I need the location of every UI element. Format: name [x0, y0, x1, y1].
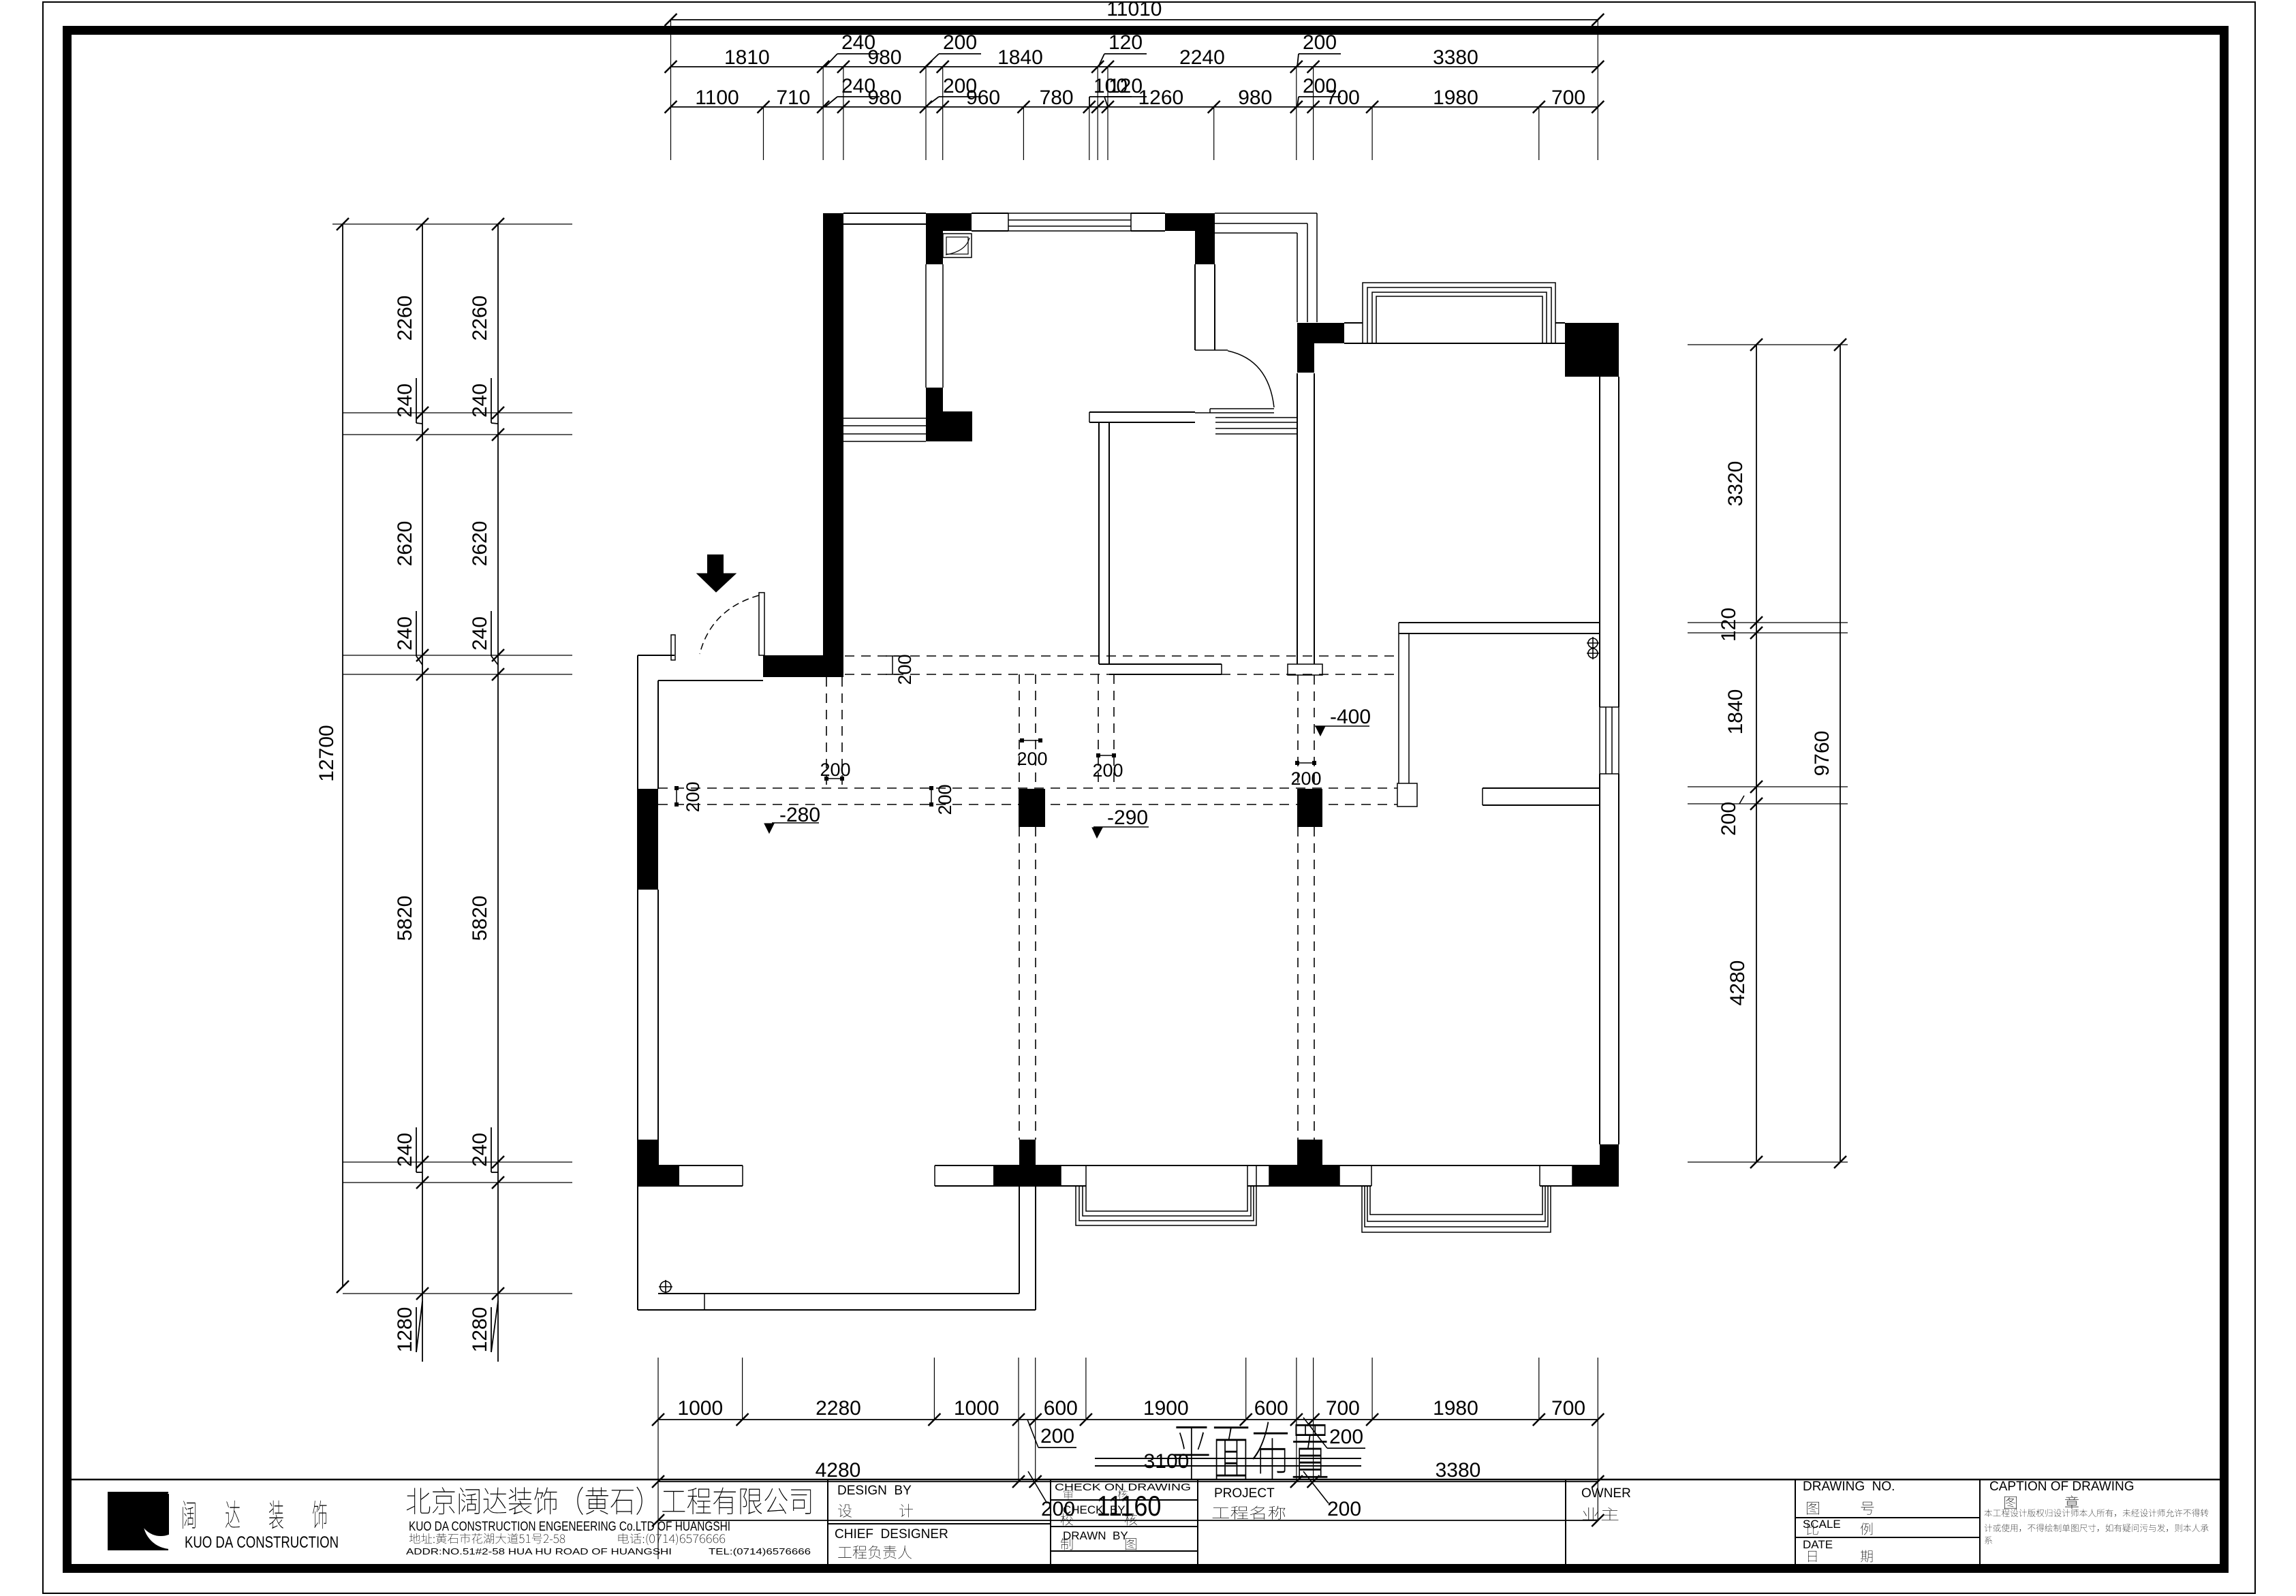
svg-text:700: 700 — [1551, 1397, 1585, 1420]
svg-text:3320: 3320 — [1724, 461, 1747, 507]
svg-text:240: 240 — [469, 384, 491, 418]
svg-text:DATE: DATE — [1803, 1538, 1833, 1551]
svg-text:ADDR:NO.51#2-58 HUA HU ROAD OF: ADDR:NO.51#2-58 HUA HU ROAD OF HUANGSHI — [406, 1546, 672, 1556]
svg-text:120: 120 — [1718, 608, 1740, 642]
svg-text:PROJECT: PROJECT — [1214, 1486, 1275, 1501]
svg-text:200: 200 — [1040, 1425, 1074, 1448]
svg-text:1840: 1840 — [997, 46, 1043, 69]
svg-text:710: 710 — [776, 87, 810, 109]
svg-text:3100: 3100 — [1144, 1450, 1190, 1473]
svg-text:1280: 1280 — [394, 1307, 416, 1353]
svg-text:120: 120 — [1108, 31, 1143, 54]
svg-text:12700: 12700 — [315, 725, 338, 781]
svg-text:KUO DA CONSTRUCTION ENGENEERIN: KUO DA CONSTRUCTION ENGENEERING Co.LTD O… — [409, 1520, 730, 1534]
svg-text:3380: 3380 — [1436, 1459, 1481, 1482]
svg-text:11010: 11010 — [1106, 0, 1162, 20]
svg-text:120: 120 — [1108, 75, 1143, 97]
svg-text:DESIGN BY: DESIGN BY — [837, 1484, 912, 1498]
svg-text:KUO DA CONSTRUCTION: KUO DA CONSTRUCTION — [185, 1533, 339, 1552]
svg-text:2280: 2280 — [816, 1397, 861, 1420]
svg-text:200: 200 — [683, 781, 703, 812]
svg-text:240: 240 — [394, 616, 416, 651]
svg-text:200: 200 — [1718, 802, 1740, 836]
svg-text:4280: 4280 — [1726, 960, 1749, 1006]
svg-text:980: 980 — [1238, 87, 1272, 109]
svg-text:200: 200 — [1290, 768, 1321, 789]
svg-text:200: 200 — [1327, 1498, 1361, 1520]
svg-text:200: 200 — [1303, 75, 1337, 97]
svg-text:4280: 4280 — [816, 1459, 861, 1482]
svg-text:1260: 1260 — [1138, 87, 1183, 109]
svg-text:CAPTION OF DRAWING: CAPTION OF DRAWING — [1989, 1480, 2135, 1494]
svg-text:-400: -400 — [1330, 706, 1371, 728]
svg-text:2620: 2620 — [394, 521, 416, 567]
svg-text:700: 700 — [1551, 87, 1585, 109]
svg-text:240: 240 — [841, 75, 875, 97]
svg-text:1980: 1980 — [1433, 87, 1478, 109]
svg-text:3380: 3380 — [1433, 46, 1478, 69]
svg-text:240: 240 — [469, 1133, 491, 1167]
svg-text:1980: 1980 — [1433, 1397, 1478, 1420]
svg-text:200: 200 — [935, 784, 955, 815]
svg-text:200: 200 — [895, 654, 915, 685]
svg-text:TEL:(0714)6576666: TEL:(0714)6576666 — [709, 1546, 811, 1556]
svg-text:240: 240 — [394, 1133, 416, 1167]
svg-text:600: 600 — [1254, 1397, 1288, 1420]
svg-text:1000: 1000 — [954, 1397, 999, 1420]
svg-text:OWNER: OWNER — [1581, 1486, 1631, 1501]
svg-text:200: 200 — [1329, 1426, 1363, 1448]
svg-text:2240: 2240 — [1179, 46, 1225, 69]
svg-text:DRAWING NO.: DRAWING NO. — [1803, 1480, 1895, 1494]
svg-text:200: 200 — [1303, 31, 1337, 54]
svg-text:1000: 1000 — [677, 1397, 723, 1420]
svg-text:200: 200 — [943, 31, 977, 54]
svg-text:SCALE: SCALE — [1803, 1518, 1841, 1531]
svg-text:-290: -290 — [1107, 807, 1148, 829]
svg-text:780: 780 — [1040, 87, 1074, 109]
svg-text:1280: 1280 — [469, 1307, 491, 1353]
svg-text:2260: 2260 — [469, 296, 491, 341]
svg-text:2260: 2260 — [394, 296, 416, 341]
svg-text:2620: 2620 — [469, 521, 491, 567]
svg-text:240: 240 — [469, 616, 491, 651]
svg-text:CHIEF DESIGNER: CHIEF DESIGNER — [835, 1527, 948, 1542]
svg-text:1840: 1840 — [1724, 689, 1747, 735]
svg-text:200: 200 — [1092, 760, 1123, 781]
svg-text:1900: 1900 — [1143, 1397, 1189, 1420]
svg-text:600: 600 — [1044, 1397, 1078, 1420]
svg-text:DRAWN BY: DRAWN BY — [1063, 1529, 1128, 1542]
svg-text:5820: 5820 — [394, 896, 416, 941]
svg-text:CHECK BY: CHECK BY — [1063, 1503, 1126, 1516]
svg-text:240: 240 — [841, 31, 875, 54]
svg-text:1810: 1810 — [724, 46, 770, 69]
svg-text:240: 240 — [394, 384, 416, 418]
svg-text:1100: 1100 — [695, 87, 739, 109]
svg-text:200: 200 — [1017, 749, 1047, 769]
svg-text:5820: 5820 — [469, 896, 491, 941]
svg-text:700: 700 — [1326, 1397, 1360, 1420]
svg-text:9760: 9760 — [1811, 731, 1833, 777]
svg-text:200: 200 — [943, 75, 977, 97]
